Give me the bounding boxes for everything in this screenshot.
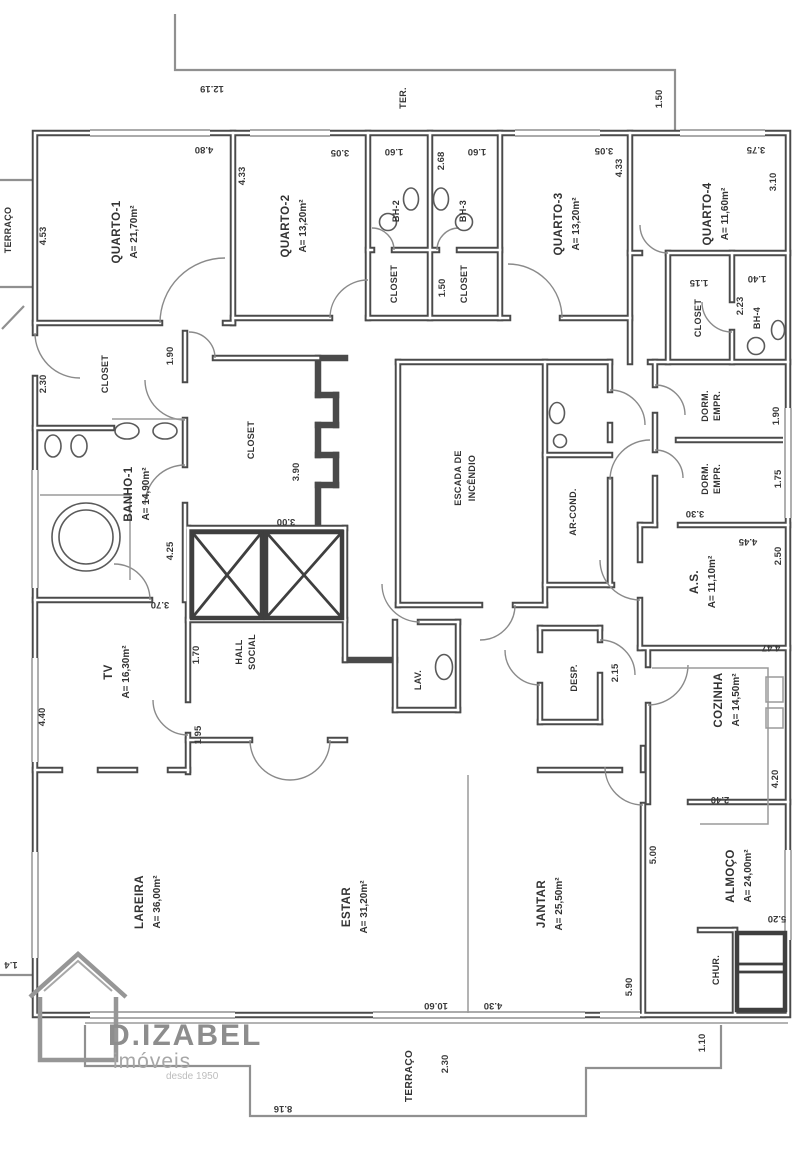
dim-closet1-width: 2.30 <box>38 375 49 394</box>
room-label-quarto1: QUARTO-1 <box>111 200 123 263</box>
dim-closet-mid: 1.50 <box>437 279 448 298</box>
room-label-banho1: BANHO-1 <box>123 466 135 521</box>
room-label-arcond: AR-COND. <box>568 488 578 535</box>
room-area-as: A= 11,10m² <box>707 555 718 608</box>
sink <box>554 435 567 448</box>
room-labels: QUARTO-1 A= 21,70m² QUARTO-2 A= 13,20m² … <box>3 87 762 1102</box>
dim-bh2-width: 1.60 <box>385 146 404 157</box>
dim-left-edge: 1.4 <box>4 959 18 970</box>
dim-dorm-width: 3.30 <box>686 508 705 519</box>
dim-jantar-depth: 5.90 <box>624 978 635 997</box>
room-area-lareira: A= 36,00m² <box>152 875 163 929</box>
dim-top-width: 12.19 <box>200 83 224 94</box>
room-label-desp: DESP. <box>569 664 579 691</box>
room-area-quarto1: A= 21,70m² <box>129 205 140 259</box>
room-label-hall-1: HALL <box>234 639 244 664</box>
label-terraco-left: TERRAÇO <box>3 207 13 254</box>
room-label-closet-q2: CLOSET <box>389 265 399 304</box>
room-label-escada-2: INCÊNDIO <box>466 455 477 501</box>
room-label-closet-q3: CLOSET <box>459 265 469 304</box>
room-label-dorm2-2: EMPR. <box>712 464 722 494</box>
room-label-quarto3: QUARTO-3 <box>553 192 565 255</box>
dim-cozinha-top: 4.47 <box>762 642 781 653</box>
room-label-quarto2: QUARTO-2 <box>280 194 292 257</box>
room-label-closet-center: CLOSET <box>246 421 256 460</box>
room-area-jantar: A= 25,50m² <box>554 877 565 931</box>
floor-plan-page: QUARTO-1 A= 21,70m² QUARTO-2 A= 13,20m² … <box>0 0 800 1167</box>
logo-name: D.IZABEL <box>108 1019 262 1052</box>
dim-jantar-side: 5.00 <box>648 846 659 865</box>
dim-tv-depth: 4.40 <box>37 708 48 727</box>
dim-q1-left: 4.53 <box>38 227 49 246</box>
room-area-quarto2: A= 13,20m² <box>298 199 309 253</box>
room-area-cozinha: A= 14,50m² <box>731 673 742 727</box>
dim-terraco-depth: 2.30 <box>440 1055 451 1074</box>
label-ter: TER. <box>398 87 408 109</box>
dim-q4-width: 3.75 <box>746 144 765 155</box>
dim-q4-depth: 3.10 <box>768 173 779 192</box>
dim-cozinha-width: 2.40 <box>711 794 730 805</box>
room-label-hall-2: SOCIAL <box>247 634 257 670</box>
bathtub <box>52 503 120 571</box>
room-area-quarto4: A= 11,60m² <box>720 187 731 240</box>
dim-banho1-below: 3.70 <box>151 599 170 610</box>
room-label-estar: ESTAR <box>341 887 353 927</box>
toilet <box>434 188 449 210</box>
room-label-dorm1-1: DORM. <box>700 390 710 422</box>
room-area-quarto3: A= 13,20m² <box>571 197 582 251</box>
toilet <box>436 655 453 680</box>
sink <box>748 338 765 355</box>
dim-closet1-depth: 1.90 <box>165 347 176 366</box>
room-label-bh4: BH-4 <box>752 307 762 329</box>
room-label-lav: LAV. <box>413 670 423 690</box>
toilet <box>772 321 785 340</box>
dim-as-width: 4.45 <box>738 536 757 547</box>
room-label-dorm1-2: EMPR. <box>712 391 722 421</box>
room-label-dorm2-1: DORM. <box>700 463 710 495</box>
room-area-tv: A= 16,30m² <box>121 645 132 699</box>
dim-desp-depth: 2.15 <box>610 663 621 682</box>
room-label-cozinha: COZINHA <box>713 672 725 727</box>
dim-q2-width: 3.05 <box>330 147 349 158</box>
toilet <box>404 188 419 210</box>
logo-subtitle: imóveis <box>113 1050 191 1073</box>
dim-bh3-width: 1.60 <box>468 146 487 157</box>
room-label-chur: CHUR. <box>711 955 721 985</box>
dim-chur-side: 1.10 <box>697 1034 708 1053</box>
room-label-bh3: BH-3 <box>458 200 468 222</box>
dim-as-depth: 2.50 <box>773 547 784 566</box>
room-label-closet-q4: CLOSET <box>693 299 703 338</box>
room-label-jantar: JANTAR <box>536 880 548 928</box>
dim-hall-width: 1.70 <box>191 646 202 665</box>
dim-terraco-width: 8.16 <box>274 1103 293 1114</box>
dim-q3-width: 3.05 <box>594 145 613 156</box>
dim-banho1-depth: 4.25 <box>165 541 176 560</box>
walls <box>35 133 788 1015</box>
dim-q1-depth: 4.33 <box>237 167 248 186</box>
logo-tagline: desde 1950 <box>166 1071 219 1082</box>
label-terraco-bottom: TERRAÇO <box>404 1050 415 1102</box>
bidet <box>71 435 87 457</box>
dim-closet2-depth: 3.90 <box>291 463 302 482</box>
dim-bh-depth: 2.68 <box>436 152 447 171</box>
dim-dorm2-depth: 1.75 <box>773 469 784 488</box>
dim-terrace-right: 1.50 <box>654 90 665 109</box>
dim-q1-width: 4.80 <box>195 144 214 155</box>
dimension-labels-vert: 1.50 4.33 4.53 2.68 4.33 3.10 1.50 2.23 … <box>37 90 784 1074</box>
room-label-tv: TV <box>103 664 115 680</box>
room-label-as: A.S. <box>689 570 701 594</box>
room-label-quarto4: QUARTO-4 <box>702 182 714 245</box>
room-label-lareira: LAREIRA <box>134 875 146 929</box>
room-label-closet-suite: CLOSET <box>100 355 110 394</box>
floor-plan-drawing: QUARTO-1 A= 21,70m² QUARTO-2 A= 13,20m² … <box>0 0 800 1167</box>
room-label-bh2: BH-2 <box>391 200 401 222</box>
dim-q3-depth: 4.33 <box>614 159 625 178</box>
toilet <box>550 403 565 424</box>
dim-closet2-width: 3.00 <box>277 516 296 527</box>
toilet <box>45 435 61 457</box>
dim-hall-depth: 1.95 <box>193 725 204 744</box>
dim-bh4-width: 1.40 <box>748 273 767 284</box>
dim-almoco-side: 5.20 <box>768 913 787 924</box>
sink <box>153 423 177 439</box>
dim-cozinha-depth: 4.20 <box>770 770 781 789</box>
terrace-outlines <box>0 14 788 1116</box>
dim-closet-q4: 1.15 <box>689 277 708 288</box>
room-area-banho1: A= 14,90m² <box>141 467 152 521</box>
dim-estar-width: 10.60 <box>424 1000 448 1011</box>
room-label-escada-1: ESCADA DE <box>453 450 463 505</box>
sink <box>115 423 139 439</box>
dim-jantar-width: 4.30 <box>484 1000 503 1011</box>
room-label-almoco: ALMOÇO <box>725 849 737 903</box>
elevator-shafts <box>192 532 342 618</box>
dim-bh4-depth: 2.23 <box>735 297 746 316</box>
room-area-almoco: A= 24,00m² <box>743 849 754 903</box>
dim-dorm1-depth: 1.90 <box>771 407 782 426</box>
room-area-estar: A= 31,20m² <box>359 880 370 934</box>
